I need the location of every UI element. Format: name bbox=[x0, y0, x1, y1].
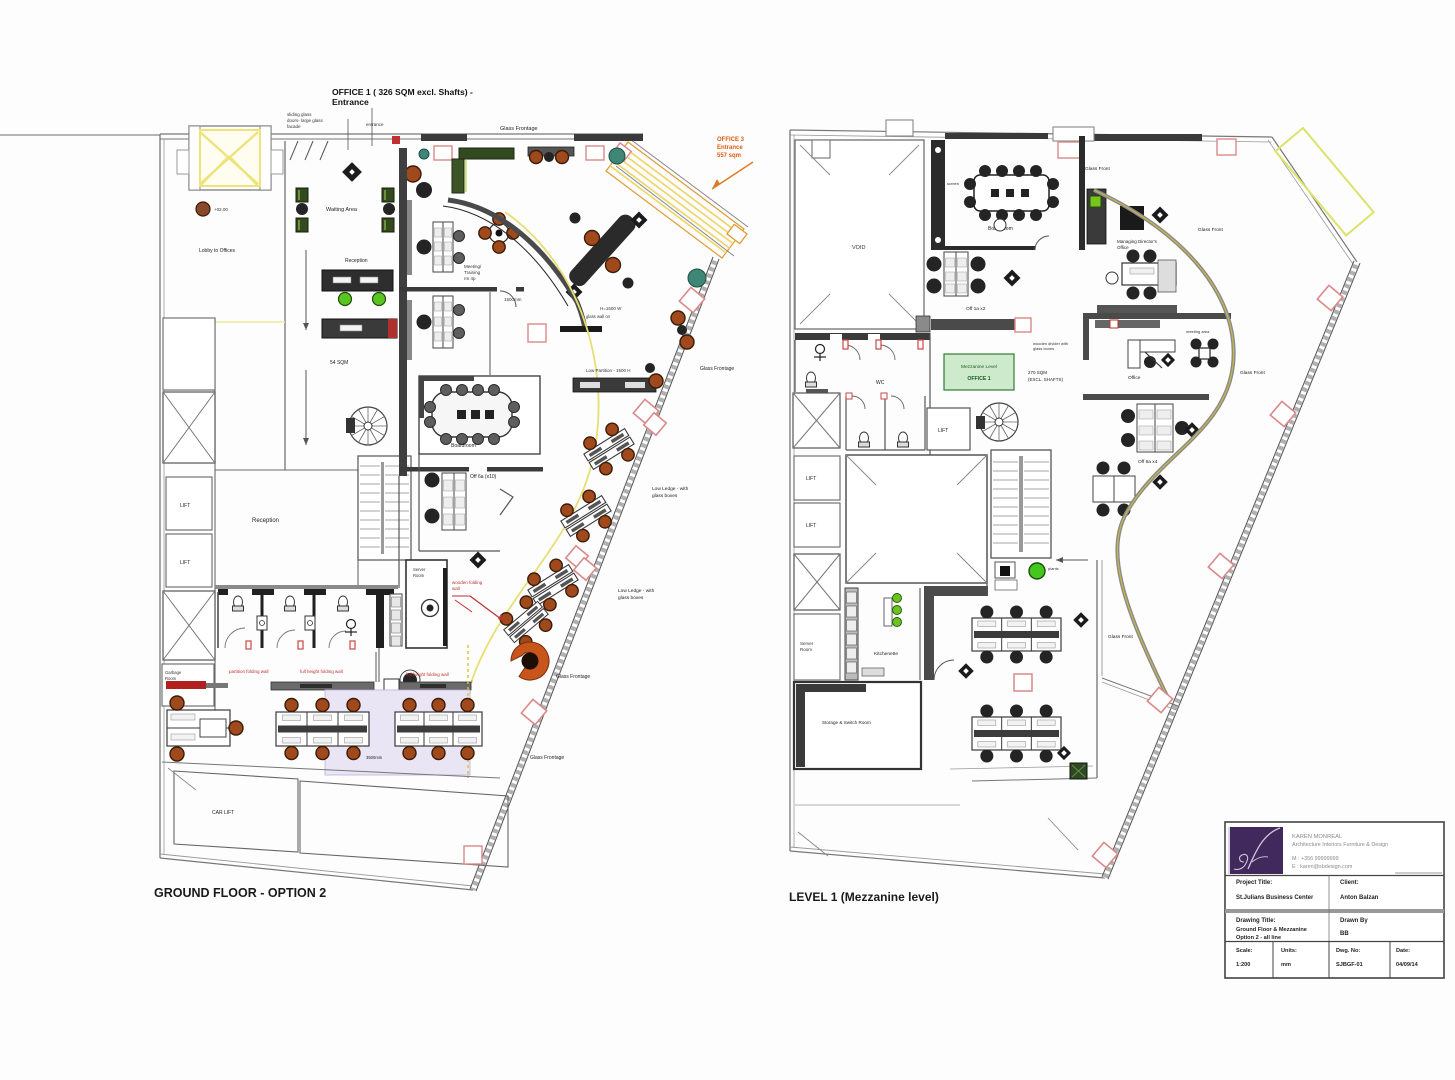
svg-text:Boardroom: Boardroom bbox=[451, 443, 476, 449]
svg-text:facade: facade bbox=[287, 124, 301, 129]
svg-text:M : +356 99999999: M : +356 99999999 bbox=[1292, 856, 1339, 862]
svg-text:Entrance: Entrance bbox=[717, 145, 743, 151]
svg-text:LIFT: LIFT bbox=[806, 523, 816, 529]
svg-text:Waiting Area: Waiting Area bbox=[326, 207, 358, 213]
svg-text:H=1500 W: H=1500 W bbox=[600, 306, 622, 311]
svg-text:Ground Floor & Mezzanine: Ground Floor & Mezzanine bbox=[1236, 927, 1307, 933]
svg-text:Low Partition - 1500 H: Low Partition - 1500 H bbox=[586, 368, 631, 373]
svg-text:Option 2 - all line: Option 2 - all line bbox=[1236, 935, 1281, 941]
svg-text:Glass Front: Glass Front bbox=[1085, 166, 1110, 172]
svg-text:screen: screen bbox=[947, 181, 959, 186]
svg-text:WC: WC bbox=[876, 380, 885, 386]
svg-text:Drawn By: Drawn By bbox=[1340, 918, 1368, 924]
svg-text:Mezzanine Level: Mezzanine Level bbox=[961, 364, 997, 370]
svg-text:Reception: Reception bbox=[345, 258, 368, 264]
svg-text:Client:: Client: bbox=[1340, 880, 1359, 886]
svg-text:Server: Server bbox=[800, 641, 814, 646]
svg-text:KAREN MONREAL: KAREN MONREAL bbox=[1292, 834, 1343, 840]
svg-text:glass boxes: glass boxes bbox=[618, 595, 644, 601]
svg-text:Project Title:: Project Title: bbox=[1236, 880, 1272, 886]
svg-text:OFFICE 1: OFFICE 1 bbox=[967, 376, 990, 382]
svg-text:LIFT: LIFT bbox=[938, 428, 948, 434]
svg-text:Garbage: Garbage bbox=[165, 670, 182, 675]
svg-text:OFFICE 1 ( 326 SQM excl. Shaf: OFFICE 1 ( 326 SQM excl. Shafts) - bbox=[332, 87, 473, 97]
svg-text:full height folding wall: full height folding wall bbox=[300, 669, 343, 674]
svg-text:Entrance: Entrance bbox=[332, 97, 369, 107]
svg-text:3500mm: 3500mm bbox=[366, 755, 383, 760]
svg-text:glass boxes: glass boxes bbox=[1033, 346, 1054, 351]
svg-text:557 sqm: 557 sqm bbox=[717, 153, 741, 159]
svg-text:Room: Room bbox=[165, 676, 177, 681]
svg-text:doors- large glass: doors- large glass bbox=[287, 118, 324, 123]
svg-text:Glass Front: Glass Front bbox=[1108, 634, 1133, 640]
svg-text:Dwg. No:: Dwg. No: bbox=[1336, 948, 1360, 954]
svg-text:entrance: entrance bbox=[366, 122, 384, 127]
svg-text:wall: wall bbox=[452, 586, 460, 591]
svg-text:VOID: VOID bbox=[852, 245, 865, 251]
svg-text:Glass Frontage: Glass Frontage bbox=[700, 366, 734, 372]
svg-text:LIFT: LIFT bbox=[180, 503, 190, 509]
svg-text:+02.00: +02.00 bbox=[214, 207, 228, 212]
svg-text:04/09/14: 04/09/14 bbox=[1396, 962, 1419, 968]
svg-text:Room: Room bbox=[413, 573, 425, 578]
svg-text:Glass Frontage: Glass Frontage bbox=[556, 674, 590, 680]
svg-text:LIFT: LIFT bbox=[180, 560, 190, 566]
svg-text:Storage & Switch Room: Storage & Switch Room bbox=[822, 720, 871, 725]
svg-text:Architecture Interiors Furnitu: Architecture Interiors Furniture & Desig… bbox=[1292, 842, 1388, 848]
svg-text:full height folding wall: full height folding wall bbox=[406, 672, 449, 677]
svg-text:Room: Room bbox=[800, 647, 812, 652]
svg-text:E : karen@sbdesign.com: E : karen@sbdesign.com bbox=[1292, 864, 1353, 870]
svg-text:Date:: Date: bbox=[1396, 948, 1410, 954]
svg-text:Low Ledge - with: Low Ledge - with bbox=[652, 486, 689, 492]
svg-text:CAR LIFT: CAR LIFT bbox=[212, 810, 234, 816]
svg-text:Glass Frontage: Glass Frontage bbox=[500, 126, 538, 132]
svg-text:plants: plants bbox=[1048, 566, 1059, 571]
svg-text:Server: Server bbox=[413, 567, 426, 572]
svg-text:Reception: Reception bbox=[252, 518, 279, 524]
svg-text:54 SQM: 54 SQM bbox=[330, 360, 348, 366]
svg-text:glass wall on: glass wall on bbox=[586, 314, 611, 319]
svg-text:Drawing Title:: Drawing Title: bbox=[1236, 918, 1276, 924]
svg-text:St.Julians Business Center: St.Julians Business Center bbox=[1236, 895, 1314, 901]
svg-text:glass boxes: glass boxes bbox=[652, 493, 678, 499]
svg-text:1:200: 1:200 bbox=[1236, 962, 1250, 968]
svg-text:mm: mm bbox=[1281, 962, 1291, 968]
svg-text:Scale:: Scale: bbox=[1236, 948, 1253, 954]
svg-text:Kitchenette: Kitchenette bbox=[874, 651, 898, 657]
svg-text:GROUND FLOOR - OPTION 2: GROUND FLOOR - OPTION 2 bbox=[154, 886, 326, 900]
svg-text:Office: Office bbox=[1128, 375, 1141, 381]
svg-text:Units:: Units: bbox=[1281, 948, 1297, 954]
svg-text:partition folding wall: partition folding wall bbox=[229, 669, 269, 674]
svg-text:Glass Frontage: Glass Frontage bbox=[530, 755, 564, 761]
svg-text:LEVEL 1 (Mezzanine level): LEVEL 1 (Mezzanine level) bbox=[789, 890, 939, 904]
svg-text:wooden folding: wooden folding bbox=[452, 580, 483, 585]
svg-text:Off 6a x4: Off 6a x4 bbox=[1138, 459, 1158, 465]
svg-text:Anton Balzan: Anton Balzan bbox=[1340, 895, 1379, 901]
svg-text:meeting area: meeting area bbox=[1186, 329, 1210, 334]
svg-text:Glass Front: Glass Front bbox=[1198, 227, 1223, 233]
svg-text:BB: BB bbox=[1340, 931, 1349, 937]
svg-text:Off 6a (x10): Off 6a (x10) bbox=[470, 474, 497, 480]
svg-text:1500mm: 1500mm bbox=[504, 297, 522, 302]
svg-text:LIFT: LIFT bbox=[806, 476, 816, 482]
svg-text:Managing Director's: Managing Director's bbox=[1117, 239, 1158, 244]
svg-text:Office: Office bbox=[1117, 245, 1129, 250]
svg-text:(EXCL. SHAFTS): (EXCL. SHAFTS) bbox=[1028, 377, 1064, 382]
svg-text:Training: Training bbox=[464, 270, 481, 275]
svg-text:270 SQM: 270 SQM bbox=[1028, 370, 1047, 375]
svg-text:sliding glass: sliding glass bbox=[287, 112, 312, 117]
svg-text:Off 1a x2: Off 1a x2 bbox=[966, 306, 986, 312]
svg-text:rm 4p: rm 4p bbox=[464, 276, 476, 281]
svg-text:OFFICE 3: OFFICE 3 bbox=[717, 137, 745, 143]
svg-text:Lobby to Offices: Lobby to Offices bbox=[199, 248, 236, 254]
svg-text:Low Ledge - with: Low Ledge - with bbox=[618, 588, 655, 594]
svg-text:SJBGF-01: SJBGF-01 bbox=[1336, 962, 1363, 968]
svg-text:Meeting/: Meeting/ bbox=[464, 264, 482, 269]
svg-text:Glass Front: Glass Front bbox=[1240, 370, 1265, 376]
